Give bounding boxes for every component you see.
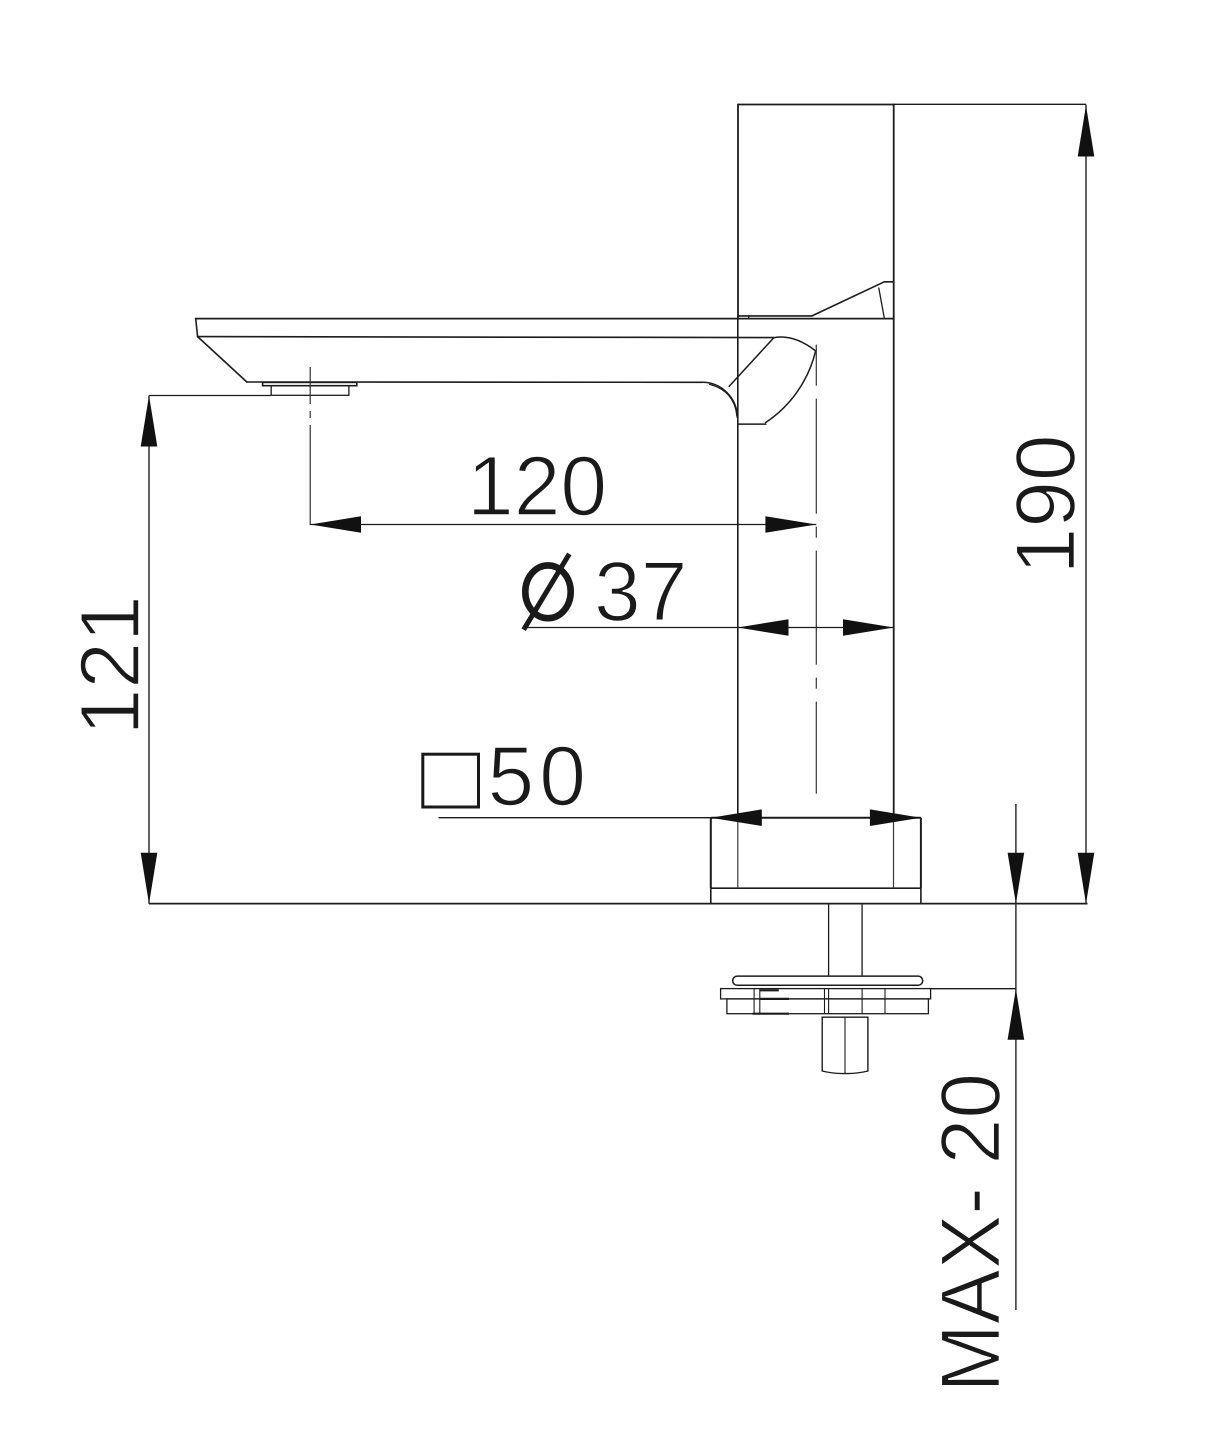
svg-text:MAX- 20: MAX- 20 — [924, 1073, 1018, 1393]
svg-text:120: 120 — [467, 439, 607, 533]
svg-text:37: 37 — [594, 545, 687, 639]
svg-text:190: 190 — [999, 434, 1093, 574]
svg-text:121: 121 — [63, 595, 157, 735]
